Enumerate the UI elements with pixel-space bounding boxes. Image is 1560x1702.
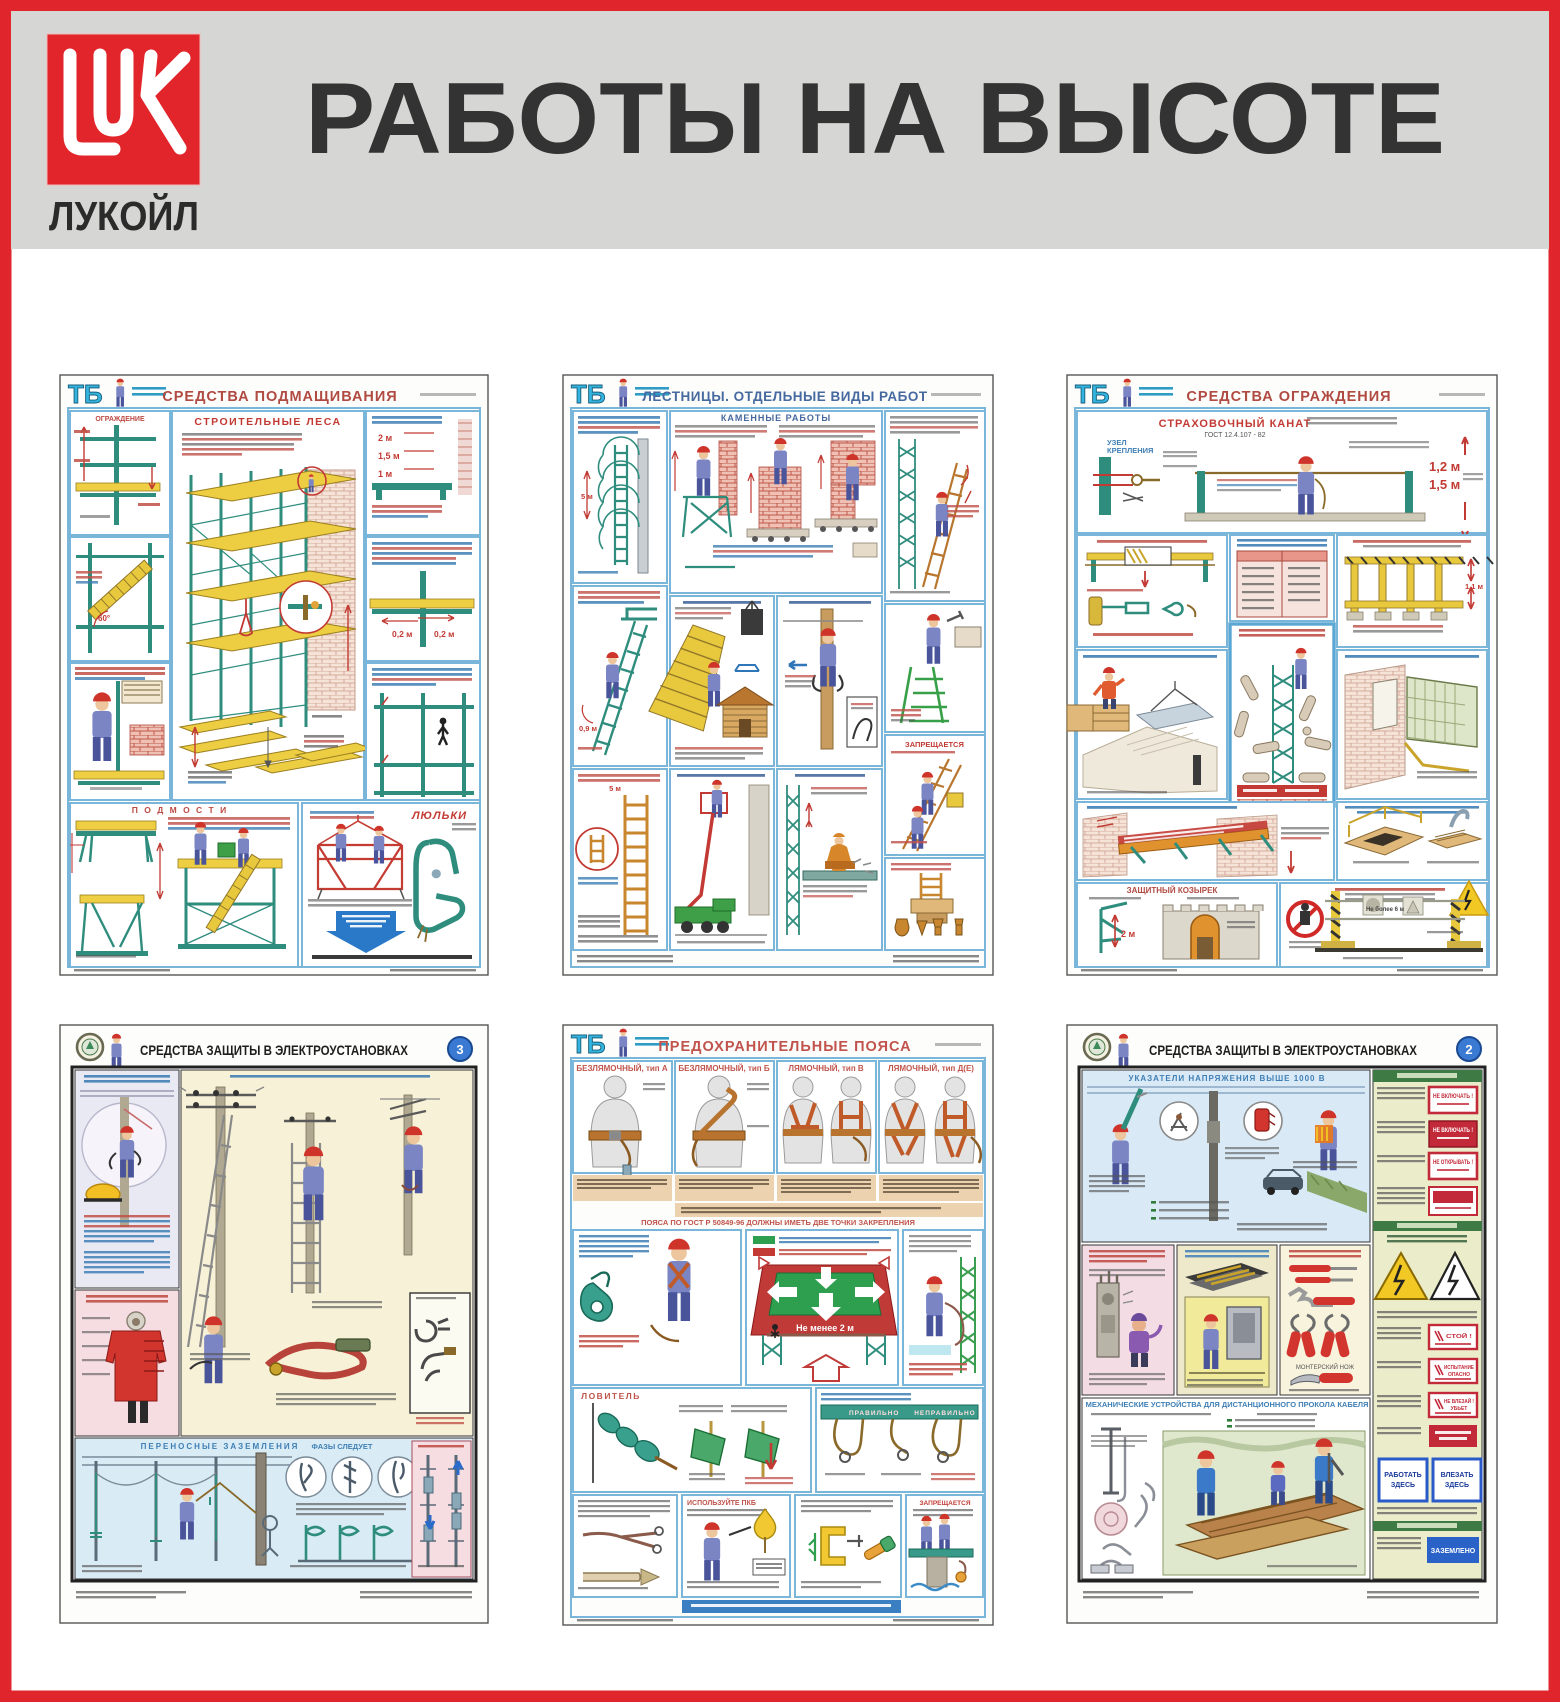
svg-text:ИСПЫТАНИЕ: ИСПЫТАНИЕ	[1444, 1365, 1475, 1371]
svg-text:СТРАХОВОЧНЫЙ КАНАТ: СТРАХОВОЧНЫЙ КАНАТ	[1159, 417, 1312, 430]
svg-text:0,2 м: 0,2 м	[434, 629, 454, 639]
svg-text:ФАЗЫ СЛЕДУЕТ: ФАЗЫ СЛЕДУЕТ	[312, 1442, 373, 1451]
svg-text:СРЕДСТВА ЗАЩИТЫ В ЭЛЕКТРОУСТАН: СРЕДСТВА ЗАЩИТЫ В ЭЛЕКТРОУСТАНОВКАХ	[1149, 1042, 1418, 1058]
svg-text:2: 2	[1465, 1042, 1472, 1057]
svg-text:Не более 6 м: Не более 6 м	[1366, 906, 1405, 913]
svg-text:1,1 м: 1,1 м	[1465, 582, 1484, 591]
svg-text:КАМЕННЫЕ РАБОТЫ: КАМЕННЫЕ РАБОТЫ	[721, 413, 831, 423]
svg-text:1,2 м: 1,2 м	[1429, 459, 1460, 474]
svg-text:ТБ: ТБ	[571, 1029, 606, 1059]
svg-text:2 м: 2 м	[378, 433, 393, 443]
svg-text:МЕХАНИЧЕСКИЕ УСТРОЙСТВА ДЛЯ ДИ: МЕХАНИЧЕСКИЕ УСТРОЙСТВА ДЛЯ ДИСТАНЦИОННО…	[1086, 1400, 1369, 1409]
svg-text:ЗДЕСЬ: ЗДЕСЬ	[1445, 1482, 1469, 1489]
svg-text:ОГРАЖДЕНИЕ: ОГРАЖДЕНИЕ	[95, 416, 145, 423]
svg-text:ЛЯМОЧНЫЙ, тип Д(Е): ЛЯМОЧНЫЙ, тип Д(Е)	[888, 1064, 974, 1073]
svg-text:НЕ ВКЛЮЧАТЬ !: НЕ ВКЛЮЧАТЬ !	[1433, 1128, 1473, 1134]
svg-text:5 м: 5 м	[581, 492, 593, 501]
svg-text:НЕ ОТКРЫВАТЬ !: НЕ ОТКРЫВАТЬ !	[1433, 1160, 1473, 1166]
svg-text:НЕПРАВИЛЬНО: НЕПРАВИЛЬНО	[914, 1410, 976, 1417]
svg-text:КРЕПЛЕНИЯ: КРЕПЛЕНИЯ	[1107, 446, 1153, 455]
svg-text:ЗАЩИТНЫЙ КОЗЫРЕК: ЗАЩИТНЫЙ КОЗЫРЕК	[1127, 886, 1218, 895]
svg-text:ПОЯСА ПО ГОСТ Р 50849-96 ДОЛЖН: ПОЯСА ПО ГОСТ Р 50849-96 ДОЛЖНЫ ИМЕТЬ ДВ…	[641, 1218, 915, 1227]
svg-text:5 м: 5 м	[609, 784, 621, 793]
svg-text:СРЕДСТВА ЗАЩИТЫ В ЭЛЕКТРОУСТАН: СРЕДСТВА ЗАЩИТЫ В ЭЛЕКТРОУСТАНОВКАХ	[140, 1042, 409, 1058]
svg-text:ПЕРЕНОСНЫЕ ЗАЗЕМЛЕНИЯ: ПЕРЕНОСНЫЕ ЗАЗЕМЛЕНИЯ	[141, 1442, 300, 1451]
svg-text:СТРОИТЕЛЬНЫЕ ЛЕСА: СТРОИТЕЛЬНЫЕ ЛЕСА	[194, 416, 341, 428]
svg-text:СТОЙ !: СТОЙ !	[1446, 1332, 1472, 1340]
svg-text:2 м: 2 м	[1121, 929, 1136, 939]
svg-text:ЛОВИТЕЛЬ: ЛОВИТЕЛЬ	[581, 1391, 641, 1401]
svg-text:60°: 60°	[98, 614, 110, 623]
svg-text:ИСПОЛЬЗУЙТЕ ПКБ: ИСПОЛЬЗУЙТЕ ПКБ	[687, 1498, 756, 1507]
svg-text:ГОСТ 12.4.107 - 82: ГОСТ 12.4.107 - 82	[1204, 432, 1265, 439]
svg-text:1 м: 1 м	[378, 469, 393, 479]
svg-text:ЛЕСТНИЦЫ. ОТДЕЛЬНЫЕ ВИДЫ РАБОТ: ЛЕСТНИЦЫ. ОТДЕЛЬНЫЕ ВИДЫ РАБОТ	[642, 389, 927, 404]
svg-text:ЗАПРЕЩАЕТСЯ: ЗАПРЕЩАЕТСЯ	[919, 1500, 970, 1507]
svg-text:1,5 м: 1,5 м	[378, 451, 400, 461]
svg-text:ЛЮЛЬКИ: ЛЮЛЬКИ	[411, 810, 467, 822]
svg-text:ОПАСНО: ОПАСНО	[1448, 1372, 1470, 1378]
svg-text:НЕ ВЛЕЗАЙ !: НЕ ВЛЕЗАЙ !	[1444, 1397, 1474, 1405]
svg-text:ЗАЗЕМЛЕНО: ЗАЗЕМЛЕНО	[1431, 1548, 1476, 1555]
svg-text:ПРЕДОХРАНИТЕЛЬНЫЕ ПОЯСА: ПРЕДОХРАНИТЕЛЬНЫЕ ПОЯСА	[658, 1039, 911, 1055]
svg-text:БЕЗЛЯМОЧНЫЙ, тип Б: БЕЗЛЯМОЧНЫЙ, тип Б	[678, 1064, 769, 1073]
svg-text:0,2 м: 0,2 м	[392, 629, 412, 639]
svg-text:3: 3	[456, 1042, 463, 1057]
svg-text:УКАЗАТЕЛИ НАПРЯЖЕНИЯ ВЫШЕ 1000: УКАЗАТЕЛИ НАПРЯЖЕНИЯ ВЫШЕ 1000 В	[1129, 1074, 1326, 1083]
svg-text:П О Д М О С Т И: П О Д М О С Т И	[132, 805, 228, 815]
svg-text:ПРАВИЛЬНО: ПРАВИЛЬНО	[849, 1410, 899, 1417]
svg-text:0,9 м: 0,9 м	[579, 724, 598, 733]
svg-text:ТБ: ТБ	[1075, 379, 1110, 409]
svg-text:ЛУКОЙЛ: ЛУКОЙЛ	[49, 193, 199, 239]
svg-text:НЕ ВКЛЮЧАТЬ !: НЕ ВКЛЮЧАТЬ !	[1433, 1093, 1473, 1100]
svg-text:МОНТЕРСКИЙ НОЖ: МОНТЕРСКИЙ НОЖ	[1296, 1363, 1355, 1371]
svg-text:ЗДЕСЬ: ЗДЕСЬ	[1391, 1482, 1415, 1489]
svg-text:УБЬЕТ: УБЬЕТ	[1451, 1406, 1468, 1412]
svg-text:РАБОТАТЬ: РАБОТАТЬ	[1384, 1472, 1421, 1479]
svg-text:Не менее 2 м: Не менее 2 м	[796, 1323, 854, 1333]
svg-text:ВЛЕЗАТЬ: ВЛЕЗАТЬ	[1441, 1472, 1474, 1479]
svg-text:1,5 м: 1,5 м	[1429, 477, 1460, 492]
svg-text:ТБ: ТБ	[68, 379, 103, 409]
svg-text:ЛЯМОЧНЫЙ, тип В: ЛЯМОЧНЫЙ, тип В	[788, 1064, 864, 1073]
svg-text:ТБ: ТБ	[571, 379, 606, 409]
svg-text:СРЕДСТВА ПОДМАЩИВАНИЯ: СРЕДСТВА ПОДМАЩИВАНИЯ	[162, 389, 397, 405]
svg-text:ЗАПРЕЩАЕТСЯ: ЗАПРЕЩАЕТСЯ	[905, 740, 964, 749]
svg-text:БЕЗЛЯМОЧНЫЙ, тип А: БЕЗЛЯМОЧНЫЙ, тип А	[576, 1064, 667, 1073]
svg-text:СРЕДСТВА ОГРАЖДЕНИЯ: СРЕДСТВА ОГРАЖДЕНИЯ	[1186, 389, 1391, 405]
svg-text:РАБОТЫ НА ВЫСОТЕ: РАБОТЫ НА ВЫСОТЕ	[305, 63, 1445, 175]
